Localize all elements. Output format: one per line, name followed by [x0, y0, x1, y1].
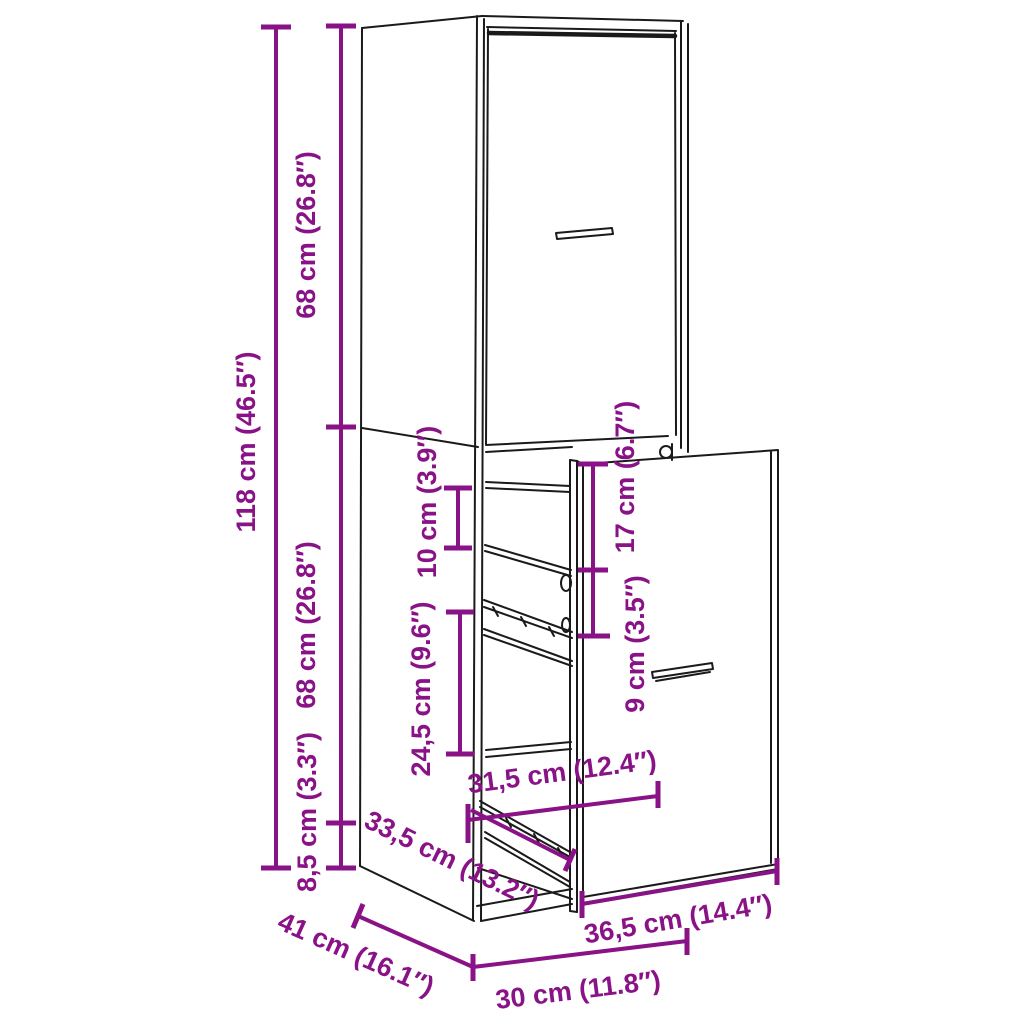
dim-label-plinth: 8,5 cm (3.3″)	[292, 732, 322, 892]
cabinet-door	[486, 29, 676, 445]
dim-24-5cm: 24,5 cm (9.6″)	[406, 601, 474, 776]
dim-label-width: 30 cm (11.8″)	[494, 965, 662, 1015]
door-top-edge	[489, 33, 675, 36]
dim-label-inner-height: 24,5 cm (9.6″)	[406, 601, 436, 776]
door-handle	[556, 228, 613, 239]
dim-label-upper-section: 68 cm (26.8″)	[291, 151, 321, 319]
dim-30cm: 30 cm (11.8″)	[473, 928, 687, 1015]
dim-line	[473, 941, 687, 967]
diagram-page: 118 cm (46.5″) 68 cm (26.8″) 68 cm (26.8…	[0, 0, 1024, 1024]
dim-label-top-gap: 10 cm (3.9″)	[412, 426, 442, 579]
dim-label-total-height: 118 cm (46.5″)	[231, 351, 261, 532]
dim-8-5cm: 8,5 cm (3.3″)	[292, 732, 356, 892]
dim-label-front-lower: 9 cm (3.5″)	[620, 575, 650, 713]
dim-label-front-upper: 17 cm (6.7″)	[610, 401, 640, 554]
drawer-catch	[660, 446, 672, 458]
dim-10cm: 10 cm (3.9″)	[412, 426, 472, 579]
dim-label-lower-section: 68 cm (26.8″)	[291, 541, 321, 709]
dim-41cm: 41 cm (16.1″)	[273, 904, 473, 1002]
cabinet-dimension-diagram: 118 cm (46.5″) 68 cm (26.8″) 68 cm (26.8…	[0, 0, 1024, 1024]
dim-118cm: 118 cm (46.5″)	[231, 27, 291, 868]
dim-68cm-top: 68 cm (26.8″)	[291, 26, 356, 427]
